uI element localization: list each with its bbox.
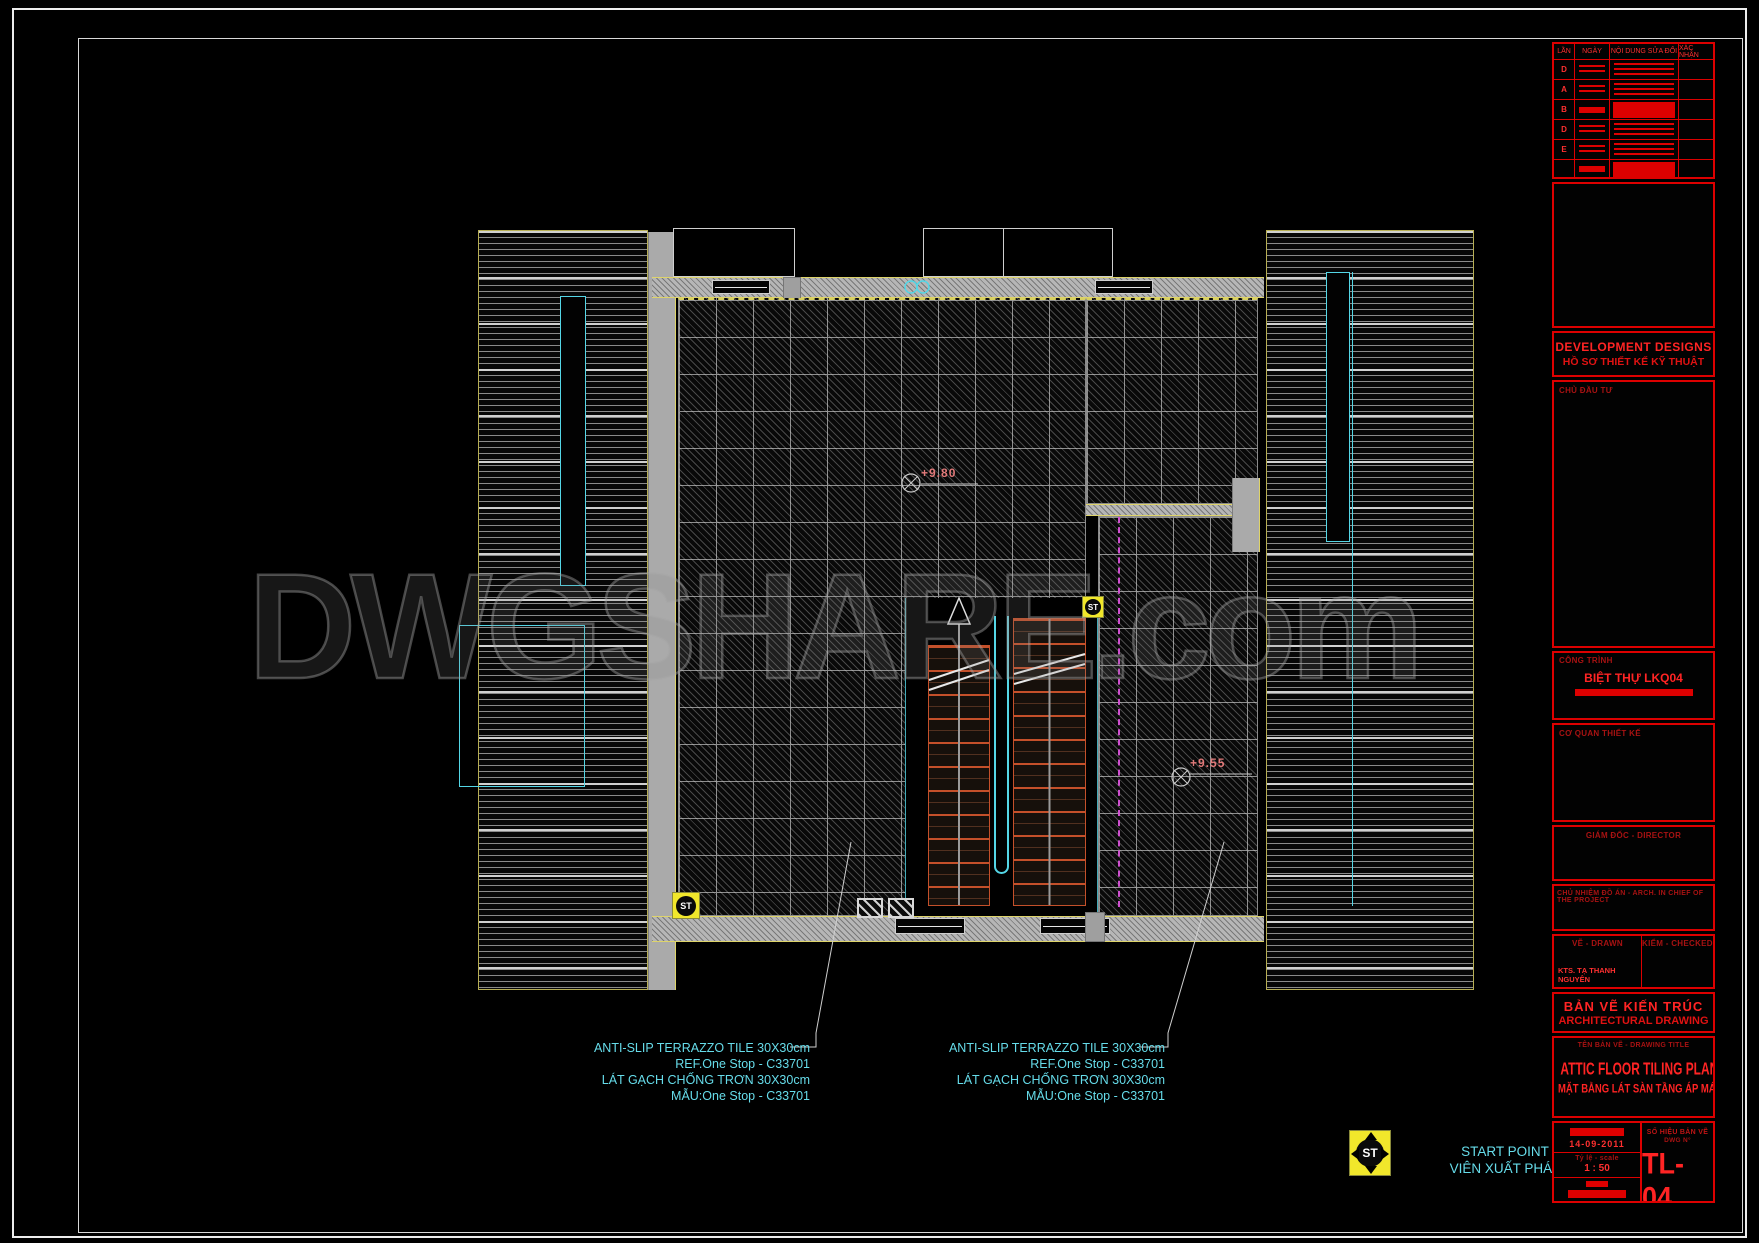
leader-line-1 bbox=[790, 842, 851, 1047]
revision-date-cell bbox=[1575, 100, 1610, 120]
project-box: CÔNG TRÌNH BIỆT THỰ LKQ04 bbox=[1552, 651, 1715, 720]
revision-header-ngay: NGÀY bbox=[1575, 44, 1610, 60]
revision-sign-cell bbox=[1679, 120, 1713, 140]
tile-annotation-2: ANTI-SLIP TERRAZZO TILE 30X30cm REF.One … bbox=[915, 1040, 1165, 1104]
drawing-title-en: ATTIC FLOOR TILING PLAN bbox=[1560, 1058, 1706, 1078]
revision-sign-cell bbox=[1679, 140, 1713, 160]
annotation-line: ANTI-SLIP TERRAZZO TILE 30X30cm bbox=[560, 1040, 810, 1056]
revision-row-label: E bbox=[1554, 140, 1575, 160]
drawing-title-vi: MẶT BẰNG LÁT SÀN TẦNG ÁP MÁI bbox=[1558, 1083, 1709, 1096]
revision-content-cell bbox=[1610, 140, 1679, 160]
revision-content-cell bbox=[1610, 120, 1679, 140]
revision-date-cell bbox=[1575, 80, 1610, 100]
annotation-line: REF.One Stop - C33701 bbox=[915, 1056, 1165, 1072]
checked-label: KIỂM - CHECKED bbox=[1642, 939, 1713, 948]
revision-content-cell bbox=[1610, 100, 1679, 120]
client-box: CHỦ ĐẦU TƯ bbox=[1552, 380, 1715, 648]
arrow-up-icon bbox=[1365, 1132, 1377, 1140]
revision-row-label: B bbox=[1554, 100, 1575, 120]
category-en: ARCHITECTURAL DRAWING bbox=[1558, 1015, 1708, 1027]
watermark: DWGSHARE.com bbox=[248, 540, 1418, 713]
firm-name: DEVELOPMENT DESIGNS bbox=[1555, 340, 1711, 354]
arrow-left-icon bbox=[1351, 1148, 1359, 1160]
director-box: GIÁM ĐỐC - DIRECTOR bbox=[1552, 825, 1715, 881]
drawing-title-box: TÊN BẢN VẼ - DRAWING TITLE ATTIC FLOOR T… bbox=[1552, 1036, 1715, 1118]
client-label: CHỦ ĐẦU TƯ bbox=[1559, 386, 1713, 395]
chief-label: CHỦ NHIỆM ĐỒ ÁN - ARCH. IN CHIEF OF THE … bbox=[1557, 890, 1710, 904]
leader-line-2 bbox=[1140, 842, 1224, 1047]
revision-row-label bbox=[1554, 160, 1575, 179]
revision-sign-cell bbox=[1679, 100, 1713, 120]
legend-start-point-symbol: ST bbox=[1349, 1130, 1391, 1176]
annotation-line: MẪU:One Stop - C33701 bbox=[560, 1088, 810, 1104]
drawn-checked-box: VẼ - DRAWN KTS. TẠ THANH NGUYÊN KIỂM - C… bbox=[1552, 934, 1715, 989]
revision-date-cell bbox=[1575, 60, 1610, 80]
number-sublabel: DWG N° bbox=[1664, 1137, 1691, 1144]
vent-symbol-icon bbox=[905, 281, 917, 293]
project-label: CÔNG TRÌNH bbox=[1559, 656, 1713, 665]
revision-content-cell bbox=[1610, 80, 1679, 100]
category-box: BẢN VẼ KIẾN TRÚC ARCHITECTURAL DRAWING bbox=[1552, 992, 1715, 1033]
firm-subtitle: HỒ SƠ THIẾT KẾ KỸ THUẬT bbox=[1563, 356, 1704, 368]
revision-sign-cell bbox=[1679, 80, 1713, 100]
drawing-number: TL-04 bbox=[1642, 1147, 1713, 1203]
number-label: SỐ HIỆU BẢN VẼ bbox=[1647, 1129, 1708, 1136]
revision-header-lan: LẦN bbox=[1554, 44, 1575, 60]
sheet-redacted-bar-small bbox=[1586, 1181, 1608, 1187]
cad-sheet: { "sheet": { "watermark": "DWGSHARE.com"… bbox=[0, 0, 1759, 1243]
arrow-down-icon bbox=[1365, 1166, 1377, 1174]
revision-date-cell bbox=[1575, 120, 1610, 140]
revision-row-label: D bbox=[1554, 60, 1575, 80]
divider bbox=[1554, 1152, 1640, 1153]
revision-date-cell bbox=[1575, 160, 1610, 179]
scale-value: 1 : 50 bbox=[1584, 1163, 1610, 1174]
level-label-2: +9.55 bbox=[1190, 756, 1225, 770]
level-label-1: +9.80 bbox=[921, 466, 956, 480]
drawing-title-label: TÊN BẢN VẼ - DRAWING TITLE bbox=[1554, 1042, 1713, 1049]
design-office-box: CƠ QUAN THIẾT KẾ bbox=[1552, 723, 1715, 822]
firm-box: DEVELOPMENT DESIGNS HỒ SƠ THIẾT KẾ KỸ TH… bbox=[1552, 331, 1715, 377]
drawn-label: VẼ - DRAWN bbox=[1554, 939, 1641, 948]
tile-annotation-1: ANTI-SLIP TERRAZZO TILE 30X30cm REF.One … bbox=[560, 1040, 810, 1104]
revision-date-cell bbox=[1575, 140, 1610, 160]
date-redacted-bar bbox=[1570, 1128, 1624, 1136]
level-target-2-icon bbox=[1172, 768, 1252, 786]
annotation-line: MẪU:One Stop - C33701 bbox=[915, 1088, 1165, 1104]
start-point-symbol: ST bbox=[1356, 1139, 1384, 1167]
arrow-right-icon bbox=[1381, 1148, 1389, 1160]
design-office-label: CƠ QUAN THIẾT KẾ bbox=[1559, 729, 1713, 738]
revision-sign-cell bbox=[1679, 60, 1713, 80]
annotation-line: LÁT GẠCH CHỐNG TRƠN 30X30cm bbox=[915, 1072, 1165, 1088]
revision-sign-cell bbox=[1679, 160, 1713, 179]
revision-row-label: A bbox=[1554, 80, 1575, 100]
annotation-line: LÁT GẠCH CHỐNG TRƠN 30X30cm bbox=[560, 1072, 810, 1088]
date-value: 14-09-2011 bbox=[1569, 1139, 1625, 1149]
divider bbox=[1554, 1177, 1640, 1178]
revision-header-xacnhan: XÁC NHẬN bbox=[1679, 44, 1713, 60]
logo-box bbox=[1552, 182, 1715, 328]
revision-header-noidung: NỘI DUNG SỬA ĐỔI bbox=[1610, 44, 1679, 60]
scale-label: Tỷ lệ - scale bbox=[1575, 1155, 1619, 1162]
revision-table: LẦN NGÀY NỘI DUNG SỬA ĐỔI XÁC NHẬN D A B… bbox=[1552, 42, 1715, 179]
director-label: GIÁM ĐỐC - DIRECTOR bbox=[1554, 831, 1713, 840]
project-name: BIỆT THỰ LKQ04 bbox=[1554, 671, 1713, 685]
number-scale-box: 14-09-2011 Tỷ lệ - scale 1 : 50 SỐ HIỆU … bbox=[1552, 1121, 1715, 1203]
annotation-line: REF.One Stop - C33701 bbox=[560, 1056, 810, 1072]
annotation-line: ANTI-SLIP TERRAZZO TILE 30X30cm bbox=[915, 1040, 1165, 1056]
project-redacted-bar bbox=[1575, 689, 1693, 696]
revision-content-cell bbox=[1610, 160, 1679, 179]
drawn-by-name: KTS. TẠ THANH NGUYÊN bbox=[1558, 966, 1641, 984]
revision-row-label: D bbox=[1554, 120, 1575, 140]
chief-box: CHỦ NHIỆM ĐỒ ÁN - ARCH. IN CHIEF OF THE … bbox=[1552, 884, 1715, 931]
sheet-redacted-bar-wide bbox=[1568, 1190, 1626, 1198]
category-vi: BẢN VẼ KIẾN TRÚC bbox=[1564, 999, 1704, 1014]
revision-content-cell bbox=[1610, 60, 1679, 80]
